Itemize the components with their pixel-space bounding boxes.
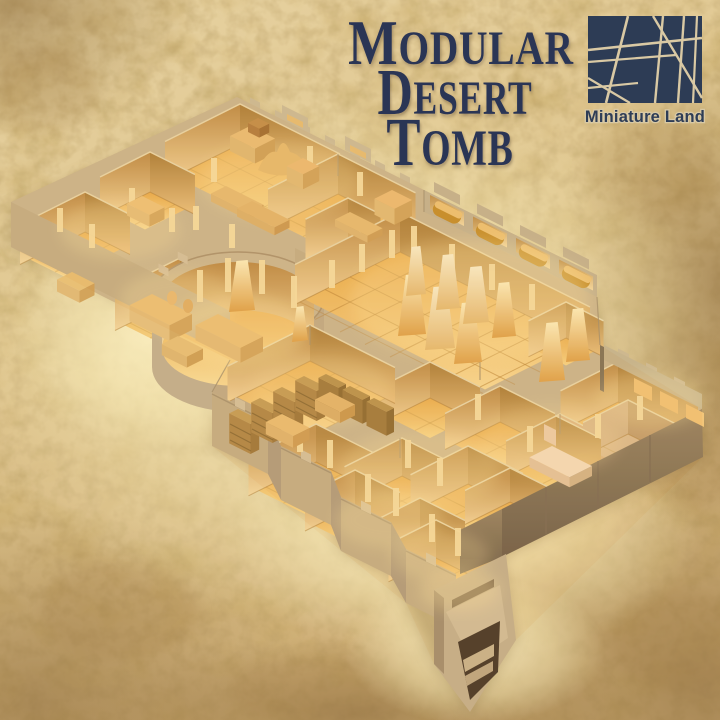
svg-text:Miniature Land: Miniature Land [585, 108, 705, 126]
